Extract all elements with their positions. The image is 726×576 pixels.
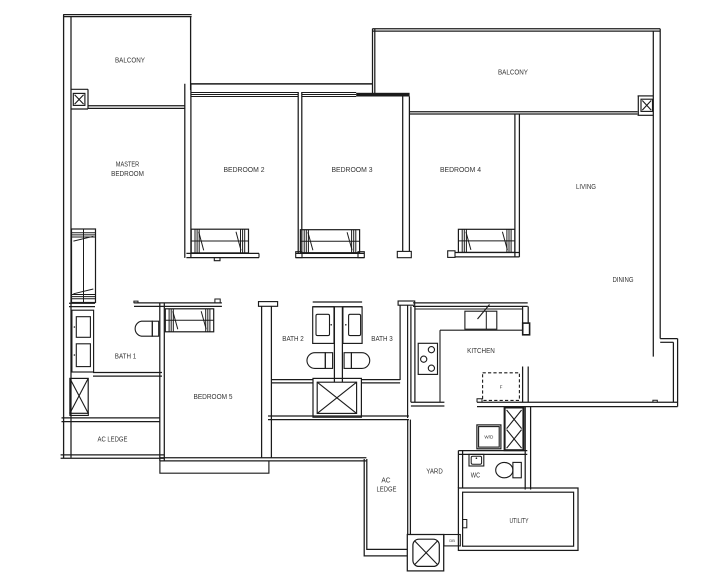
svg-text:BEDROOM 5: BEDROOM 5 xyxy=(194,392,233,401)
svg-text:F: F xyxy=(500,385,503,390)
svg-text:BALCONY: BALCONY xyxy=(115,55,145,64)
svg-text:BATH 2: BATH 2 xyxy=(282,334,303,343)
svg-text:DINING: DINING xyxy=(613,275,634,284)
svg-text:KITCHEN: KITCHEN xyxy=(467,346,495,355)
svg-text:BATH 1: BATH 1 xyxy=(115,351,136,360)
svg-text:BEDROOM 4: BEDROOM 4 xyxy=(440,165,481,174)
svg-text:LEDGE: LEDGE xyxy=(377,485,397,494)
svg-text:BATH 3: BATH 3 xyxy=(371,334,392,343)
svg-text:YARD: YARD xyxy=(426,467,443,476)
svg-text:WC: WC xyxy=(471,471,480,480)
svg-text:BEDROOM: BEDROOM xyxy=(111,169,144,178)
svg-text:LIVING: LIVING xyxy=(576,182,596,191)
svg-text:AC LEDGE: AC LEDGE xyxy=(98,435,128,444)
svg-text:UTILITY: UTILITY xyxy=(510,516,529,525)
svg-text:MASTER: MASTER xyxy=(116,160,140,169)
svg-text:BEDROOM 2: BEDROOM 2 xyxy=(224,165,265,174)
svg-text:AC: AC xyxy=(381,475,390,484)
svg-text:BEDROOM 3: BEDROOM 3 xyxy=(332,165,373,174)
svg-text:BALCONY: BALCONY xyxy=(498,67,528,76)
svg-text:W/D: W/D xyxy=(484,435,493,440)
svg-text:DB: DB xyxy=(449,539,455,543)
